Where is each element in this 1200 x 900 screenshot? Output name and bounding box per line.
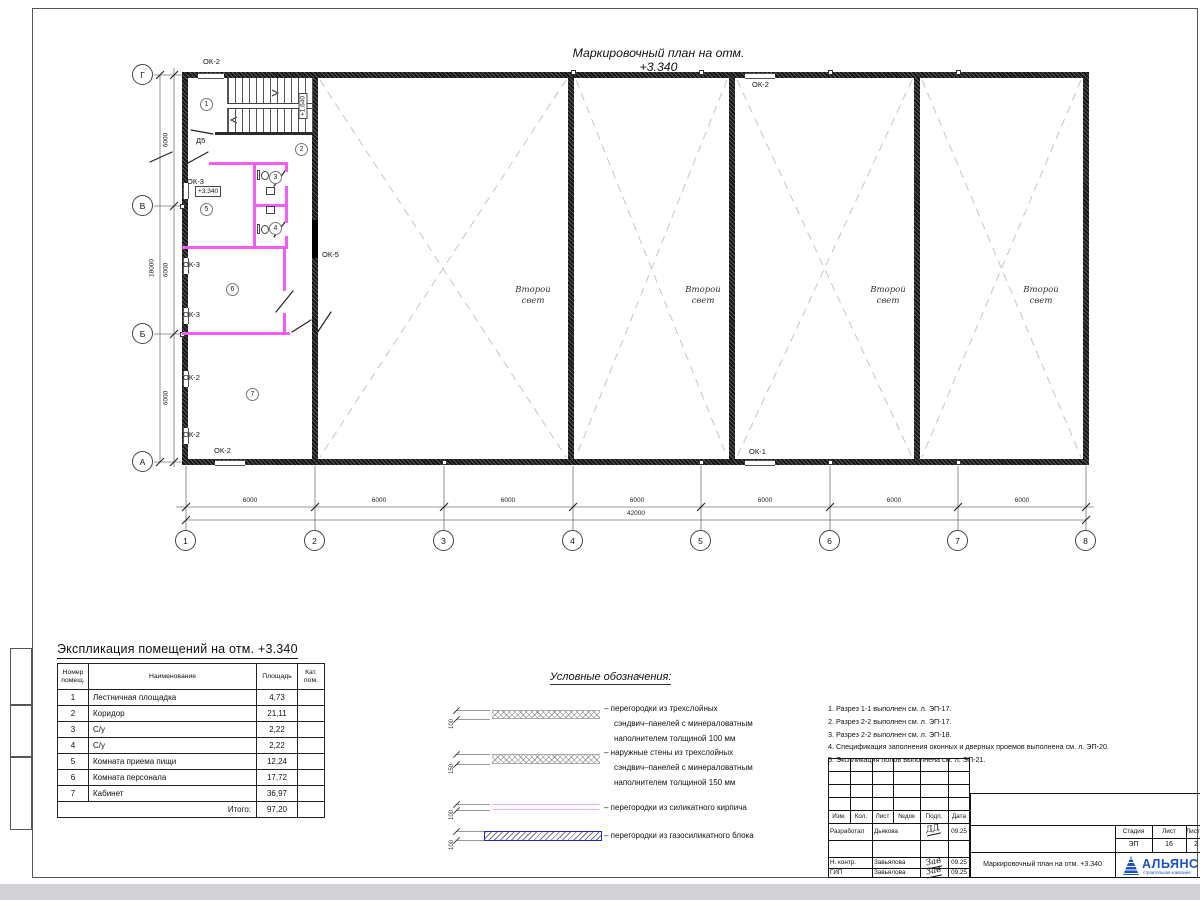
dim-leader xyxy=(456,710,490,720)
sink-icon xyxy=(266,187,275,195)
col-header: Кат. пом. xyxy=(298,664,325,690)
window-label: ОК-3 xyxy=(183,260,200,269)
stair-level-mark: +1.640 xyxy=(299,93,308,119)
window-label: ОК-2 xyxy=(214,446,231,455)
company-logo-icon xyxy=(1123,856,1139,875)
thickness-label: 100 xyxy=(449,719,455,729)
partition xyxy=(283,249,286,291)
room-bubble: 6 xyxy=(226,283,239,296)
column-marker xyxy=(828,460,833,465)
column-marker xyxy=(828,70,833,75)
window-opening xyxy=(215,460,245,466)
partition xyxy=(182,246,288,249)
total-value: 97,20 xyxy=(257,802,298,818)
toilet-icon xyxy=(257,170,260,180)
stage-header: Стадия xyxy=(1115,825,1152,838)
room-bubble: 1 xyxy=(200,98,213,111)
table-row: 5Комната приема пищи12,24 xyxy=(58,754,325,770)
grid-bubble-row: Б xyxy=(132,323,153,344)
window-label: ОК-2 xyxy=(183,373,200,382)
note-line: 3. Разрез 2-2 выполнен см. л. ЭП-18. xyxy=(828,729,1109,742)
person-name: Дьякова xyxy=(873,823,920,840)
note-line: 2. Разрез 2-2 выполнен см. л. ЭП-17. xyxy=(828,716,1109,729)
table-row: 4С/у2,22 xyxy=(58,738,325,754)
grid-bubble-row: А xyxy=(132,451,153,472)
gas-silicate-swatch xyxy=(484,831,602,841)
rev-header: Лист xyxy=(872,810,893,823)
column-marker xyxy=(699,460,704,465)
dim-leader xyxy=(456,754,490,765)
level-mark: +3.340 xyxy=(195,186,221,197)
toilet-icon xyxy=(261,171,269,180)
dim-label: 6000 xyxy=(359,497,399,504)
dim-label: 6000 xyxy=(488,497,528,504)
room-bubble: 5 xyxy=(200,203,213,216)
dim-leader xyxy=(456,804,490,811)
exterior-wall-right xyxy=(1083,72,1089,465)
sheets-value: 2 xyxy=(1186,838,1200,852)
explication-block: Экспликация помещений на отм. +3.340 Ном… xyxy=(57,640,325,818)
column-marker xyxy=(180,204,185,209)
grid-bubble-col: 4 xyxy=(562,530,583,551)
dim-label: 6000 xyxy=(745,497,785,504)
table-row: 1Лестничная площадка4,73 xyxy=(58,690,325,706)
grid-bubble-row: Г xyxy=(132,64,153,85)
dim-label: 6000 xyxy=(163,133,170,147)
company-logo-subtitle: строительная компания xyxy=(1143,870,1191,875)
window-label: ОК-2 xyxy=(752,80,769,89)
dim-label: 6000 xyxy=(617,497,657,504)
date-value: 09.25 xyxy=(948,823,970,840)
room-bubble: 3 xyxy=(269,171,282,184)
dim-label: 6000 xyxy=(163,391,170,405)
frame-side-cell xyxy=(10,757,32,830)
column-marker xyxy=(956,460,961,465)
column-marker xyxy=(956,70,961,75)
stage-value: ЭП xyxy=(1115,838,1152,852)
date-value: 09.25 xyxy=(948,857,970,868)
explication-table: Номер помещ. Наименование Площадь Кат. п… xyxy=(57,663,325,818)
note-line: 4. Спецификация заполнения оконных и две… xyxy=(828,741,1109,754)
stair-wall xyxy=(215,132,312,135)
second-light-label: Второйсвет xyxy=(1011,285,1071,306)
grid-bubble-col: 8 xyxy=(1075,530,1096,551)
dim-label: 6000 xyxy=(1002,497,1042,504)
sandwich-panel-swatch xyxy=(492,710,600,719)
toilet-icon xyxy=(257,224,260,234)
window-label: ОК-5 xyxy=(322,250,339,259)
sheet-value: 16 xyxy=(1152,838,1186,852)
interior-wall-hall1 xyxy=(568,78,574,459)
role-label: Разработал xyxy=(829,823,873,840)
table-row: 3С/у2,22 xyxy=(58,722,325,738)
exterior-wall-bottom xyxy=(182,459,1089,465)
door-label: Д5 xyxy=(196,136,205,145)
rev-header: Изм. xyxy=(828,810,850,823)
rev-header: №док xyxy=(893,810,920,823)
window-label: ОК-1 xyxy=(749,447,766,456)
table-row: 7Кабинет36,97 xyxy=(58,786,325,802)
table-total-row: Итого: 97,20 xyxy=(58,802,325,818)
col-header: Площадь xyxy=(257,664,298,690)
rev-header: Подп. xyxy=(920,810,948,823)
person-name: Завьялова xyxy=(873,857,920,868)
interior-wall-hall2 xyxy=(729,78,735,459)
total-label: Итого: xyxy=(58,802,257,818)
sink-icon xyxy=(266,206,275,214)
legend-title: Условные обозначения: xyxy=(550,671,671,685)
thickness-label: 100 xyxy=(449,840,455,850)
rev-header: Дата xyxy=(948,810,970,823)
title-block: Изм. Кол. Лист №док Подп. Дата Разработа… xyxy=(828,758,1200,878)
frame-side-cell xyxy=(10,648,32,705)
desk-background xyxy=(0,884,1200,900)
frame-side-cell xyxy=(10,705,32,757)
partition xyxy=(209,162,288,165)
room-bubble: 7 xyxy=(246,388,259,401)
window-label: ОК-2 xyxy=(183,430,200,439)
role-label: Н. контр. xyxy=(829,857,873,868)
window-opening xyxy=(198,73,224,79)
col-header: Наименование xyxy=(89,664,257,690)
second-light-label: Второйсвет xyxy=(858,285,918,306)
rev-header: Кол. xyxy=(850,810,872,823)
window-label: ОК-3 xyxy=(187,177,204,186)
partition xyxy=(283,313,286,335)
table-row: 2Коридор21,11 xyxy=(58,706,325,722)
dim-total-label: 42000 xyxy=(611,510,661,517)
interior-wall-axis2 xyxy=(312,78,318,459)
note-line: 1. Разрез 1-1 выполнен см. л. ЭП-17. xyxy=(828,703,1109,716)
grid-bubble-col: 1 xyxy=(175,530,196,551)
grid-bubble-row: В xyxy=(132,195,153,216)
legend-block: Условные обозначения: 100 – перегородки … xyxy=(448,665,868,860)
company-logo-name: АЛЬЯНС xyxy=(1142,857,1199,871)
silicate-brick-swatch xyxy=(492,804,600,810)
room-bubble: 2 xyxy=(295,143,308,156)
partition xyxy=(182,332,290,335)
person-name: Завьялова xyxy=(873,868,920,878)
window-opening xyxy=(745,73,775,79)
table-row: 6Комната персонала17,72 xyxy=(58,770,325,786)
date-value: 09.25 xyxy=(948,868,970,878)
window-label: ОК-3 xyxy=(183,310,200,319)
grid-bubble-col: 3 xyxy=(433,530,454,551)
sheets-header: Листов xyxy=(1186,825,1200,838)
explication-title: Экспликация помещений на отм. +3.340 xyxy=(57,642,298,659)
col-header: Номер помещ. xyxy=(58,664,89,690)
room-bubble: 4 xyxy=(269,222,282,235)
sheet-header: Лист xyxy=(1152,825,1186,838)
dim-label: 6000 xyxy=(230,497,270,504)
grid-bubble-col: 2 xyxy=(304,530,325,551)
second-light-label: Второйсвет xyxy=(673,285,733,306)
dim-total-label: 18000 xyxy=(149,259,156,277)
partition xyxy=(285,162,288,172)
role-label: ГИП xyxy=(829,868,873,878)
window-opening xyxy=(745,460,775,466)
interior-wall-hall3 xyxy=(914,78,920,459)
second-light-label: Второйсвет xyxy=(503,285,563,306)
exterior-wall-top xyxy=(182,72,1089,78)
column-marker xyxy=(442,460,447,465)
grid-bubble-col: 7 xyxy=(947,530,968,551)
dim-label: 6000 xyxy=(163,263,170,277)
column-marker xyxy=(699,70,704,75)
toilet-icon xyxy=(261,225,269,234)
grid-bubble-col: 6 xyxy=(819,530,840,551)
doc-title: Маркировочный план на отм. +3.340 xyxy=(971,854,1114,875)
dim-label: 6000 xyxy=(874,497,914,504)
grid-bubble-col: 5 xyxy=(690,530,711,551)
sandwich-wall-swatch xyxy=(492,754,600,764)
window-label: ОК-2 xyxy=(203,57,220,66)
window-ok5 xyxy=(312,220,318,258)
column-marker xyxy=(571,70,576,75)
thickness-label: 150 xyxy=(449,764,455,774)
thickness-label: 100 xyxy=(449,810,455,820)
